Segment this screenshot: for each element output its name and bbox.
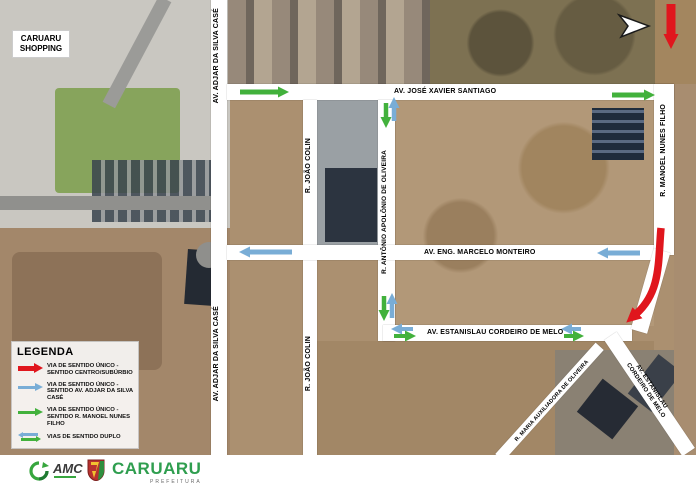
satellite-patch xyxy=(430,0,665,86)
satellite-patch xyxy=(325,168,377,242)
legend-box: LEGENDA VIA DE SENTIDO ÚNICO - SENTIDO C… xyxy=(11,341,139,449)
satellite-patch xyxy=(92,160,212,222)
legend-item-line: VIA DE SENTIDO ÚNICO - xyxy=(47,382,118,388)
street-label-antonio-apolonio: R. ANTÔNIO APOLÔNIO DE OLIVEIRA xyxy=(381,150,388,274)
satellite-patch xyxy=(228,0,430,84)
street-label-marcelo-monteiro: AV. ENG. MARCELO MONTEIRO xyxy=(424,249,536,256)
legend-item-green: VIA DE SENTIDO ÚNICO - SENTIDO R. MANOEL… xyxy=(17,407,133,427)
city-wordmark: CARUARU xyxy=(112,459,201,479)
legend-item-line: SENTIDO R. MANOEL NUNES FILHO xyxy=(47,414,130,427)
blue-arrow-icon xyxy=(17,382,47,393)
legend-item-blue: VIA DE SENTIDO ÚNICO - SENTIDO AV. ADJAR… xyxy=(17,382,133,402)
legend-item-line: SENTIDO AV. ADJAR DA SILVA CASÉ xyxy=(47,388,133,401)
satellite-patch xyxy=(655,0,696,84)
traffic-plan-map: AV. ADJAR DA SILVA CASÉ AV. ADJAR DA SIL… xyxy=(0,0,696,492)
street-label-manoel-nunes: R. MANOEL NUNES FILHO xyxy=(660,104,667,197)
street-label-jose-xavier: AV. JOSÉ XAVIER SANTIAGO xyxy=(394,88,496,95)
city-wordmark-subtitle: PREFEITURA xyxy=(150,479,202,485)
satellite-patch xyxy=(592,108,644,160)
green-arrow-icon xyxy=(17,407,47,418)
amc-logo-label: AMC xyxy=(53,461,83,476)
street-label-adjar-bottom: AV. ADJAR DA SILVA CASÉ xyxy=(213,306,220,401)
legend-item-line: VIA DE SENTIDO ÚNICO - xyxy=(47,363,118,369)
two-way-arrows-icon xyxy=(17,432,47,442)
legend-item-line: VIAS DE SENTIDO DUPLO xyxy=(47,434,121,440)
street-label-joao-colin-top: R. JOÃO COLIN xyxy=(305,138,312,193)
red-arrow-icon xyxy=(17,363,47,374)
footer-bar: AMC CARUARU PREFEITURA xyxy=(0,455,696,492)
shopping-callout: CARUARU SHOPPING xyxy=(12,30,70,58)
street-label-joao-colin-bottom: R. JOÃO COLIN xyxy=(305,336,312,391)
street-label-estanislau: AV. ESTANISLAU CORDEIRO DE MELO xyxy=(427,329,563,336)
legend-item-red: VIA DE SENTIDO ÚNICO - SENTIDO CENTRO/SU… xyxy=(17,363,133,377)
street-label-adjar-top: AV. ADJAR DA SILVA CASÉ xyxy=(213,8,220,103)
legend-item-line: SENTIDO CENTRO/SUBÚRBIO xyxy=(47,370,133,376)
amc-logo-underline xyxy=(54,476,76,478)
legend-title: LEGENDA xyxy=(17,346,133,358)
satellite-patch xyxy=(674,84,696,455)
legend-item-line: VIA DE SENTIDO ÚNICO - xyxy=(47,407,118,413)
city-shield-icon xyxy=(87,459,105,482)
legend-item-duplo: VIAS DE SENTIDO DUPLO xyxy=(17,432,133,442)
satellite-road xyxy=(0,196,212,210)
amc-logo-icon xyxy=(28,460,50,482)
